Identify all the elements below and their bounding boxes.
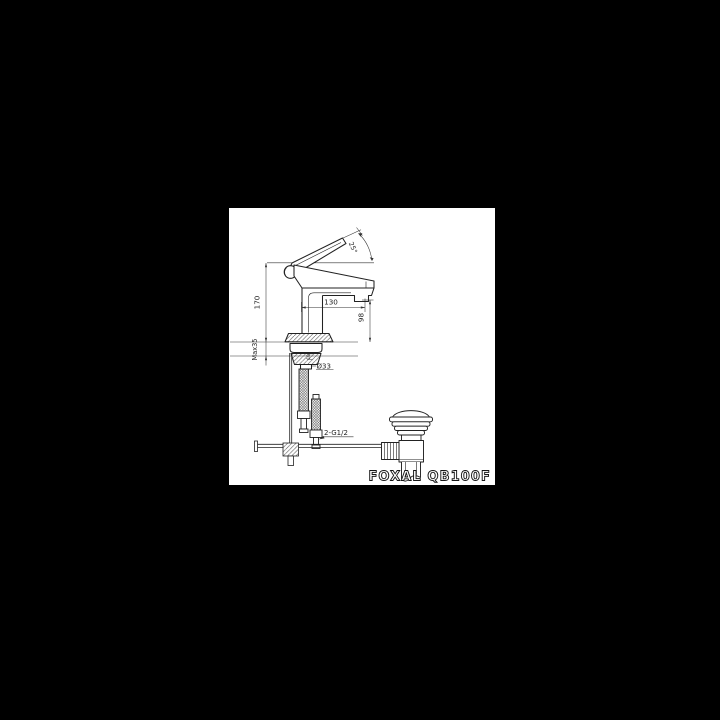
screenshot-canvas: 170 Max35 130 98 25° Ø33 10 2-G1/2 FOXAL… [0, 0, 720, 720]
product-label: FOXAL QB100F [368, 470, 491, 485]
dim-max-deck: Max35 [251, 338, 259, 360]
shank [301, 365, 312, 370]
dim-overall-height: 170 [253, 295, 262, 309]
faucet-spout [294, 265, 374, 288]
flex-hose-1 [299, 369, 309, 411]
drain-body [399, 441, 424, 463]
supply-hoses [298, 369, 323, 449]
flex-hose-2 [312, 399, 321, 430]
faucet-base-flange [285, 334, 333, 342]
dim-shank-detail: 10 [306, 354, 311, 360]
linkage-clamp [283, 443, 299, 456]
drain-dome-cap [393, 411, 430, 417]
faucet-technical-drawing: 170 Max35 130 98 25° Ø33 10 2-G1/2 FOXAL… [229, 208, 495, 485]
technical-drawing-sheet: 170 Max35 130 98 25° Ø33 10 2-G1/2 FOXAL… [229, 208, 495, 485]
dim-spout-height: 98 [357, 313, 366, 323]
dim-supply-connection: 2-G1/2 [324, 429, 348, 437]
dim-hole-diameter: Ø33 [317, 363, 331, 371]
dim-spout-reach: 130 [324, 298, 338, 307]
mounting-washer [290, 344, 322, 353]
dim-handle-angle: 25° [347, 241, 359, 255]
